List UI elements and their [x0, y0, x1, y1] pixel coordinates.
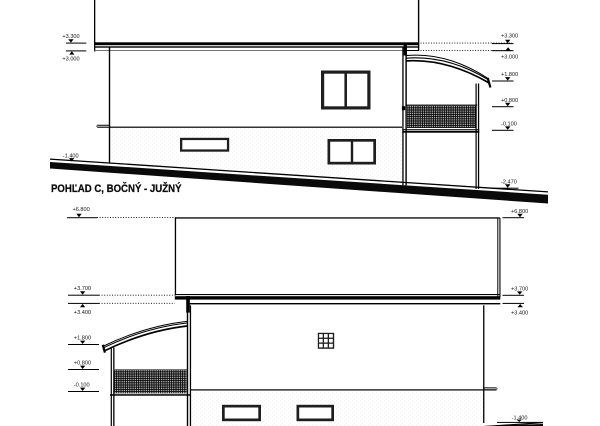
svg-text:+3.700: +3.700 [74, 286, 91, 292]
svg-text:POHĽAD C, BOČNÝ - JUŽNÝ: POHĽAD C, BOČNÝ - JUŽNÝ [51, 182, 182, 195]
svg-text:+3.300: +3.300 [62, 34, 79, 40]
svg-text:+6.800: +6.800 [73, 207, 90, 213]
svg-text:+3.300: +3.300 [501, 34, 518, 40]
svg-text:+3.400: +3.400 [511, 310, 528, 316]
svg-text:+3.400: +3.400 [74, 310, 91, 316]
svg-text:+3.000: +3.000 [62, 57, 79, 63]
svg-text:+3.000: +3.000 [501, 54, 518, 60]
